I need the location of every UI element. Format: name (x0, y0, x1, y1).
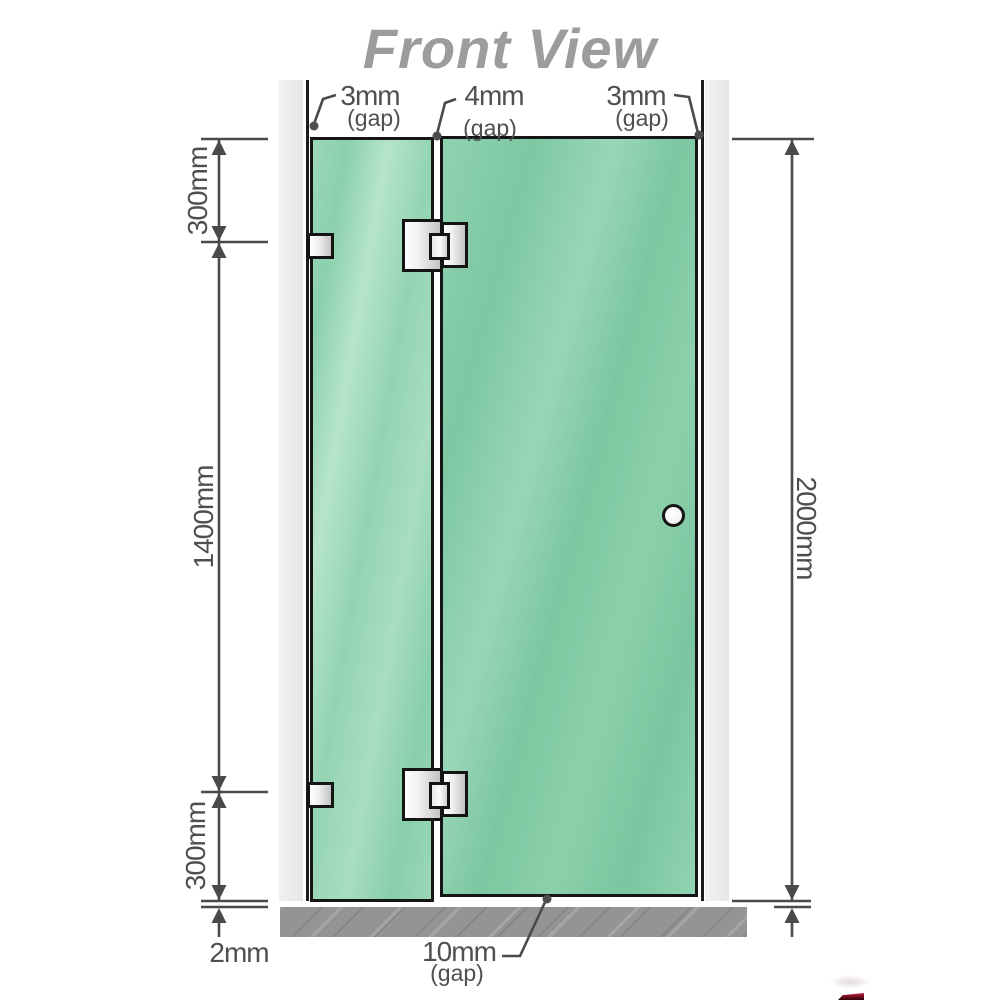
front-view-diagram: Front View (0, 0, 1000, 1000)
label-total-height: 2000mm (792, 468, 820, 588)
hinge-bottom-center-tab (429, 782, 450, 809)
floor (280, 907, 747, 937)
label-segment-top: 300mm (184, 131, 212, 251)
label-gap-top-left-qualifier: (gap) (334, 107, 414, 130)
door-glass-panel (440, 136, 698, 897)
wall-bracket-top (307, 233, 334, 259)
hinge-top-center-tab (429, 233, 450, 260)
label-gap-top-right-qualifier: (gap) (602, 107, 682, 130)
label-floor-clearance: 2mm (199, 939, 279, 967)
label-gap-top-middle-value: 4mm (454, 82, 534, 110)
label-segment-middle: 1400mm (190, 457, 218, 577)
right-wall-edge-line (701, 80, 704, 901)
label-gap-top-middle-qualifier: (gap) (450, 117, 530, 140)
watermark-smudge (824, 974, 876, 990)
watermark-red-mark (838, 993, 864, 1000)
left-wall (279, 80, 303, 901)
left-wall-edge-line (306, 80, 309, 901)
label-gap-bottom-qualifier: (gap) (412, 962, 502, 985)
door-handle-knob (662, 504, 685, 527)
right-wall (705, 80, 729, 901)
label-segment-bottom: 300mm (182, 786, 210, 906)
wall-bracket-bottom (307, 782, 334, 808)
diagram-title: Front View (320, 20, 700, 79)
